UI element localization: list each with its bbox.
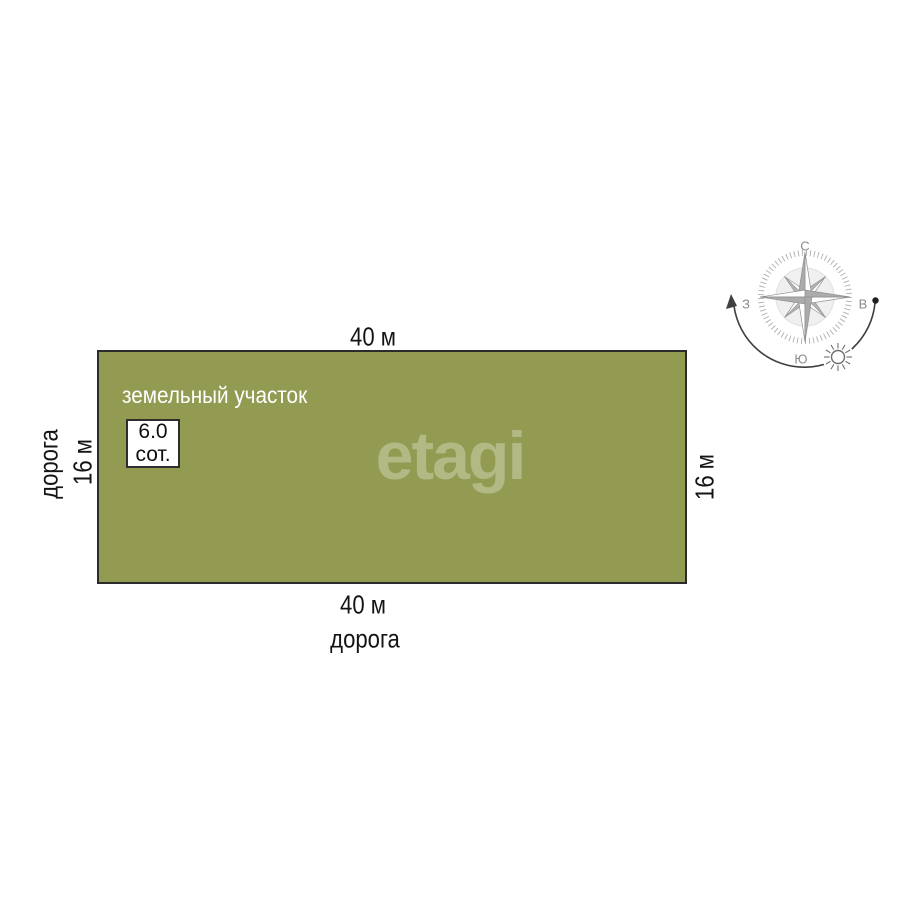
plot-title: земельный участок xyxy=(122,382,307,409)
area-value: 6.0 xyxy=(138,421,167,443)
compass-east-label: В xyxy=(859,297,868,312)
dimension-left: 16 м xyxy=(68,439,99,485)
compass-north-label: С xyxy=(800,239,809,254)
compass-rose-icon: С Ю З В xyxy=(715,230,895,390)
dimension-bottom: 40 м xyxy=(340,590,386,621)
sun-icon xyxy=(822,341,854,373)
road-label-left: дорога xyxy=(34,429,65,499)
land-plot-diagram: земельный участок 6.0 сот. etagi 40 м 40… xyxy=(0,0,900,900)
compass-south-label: Ю xyxy=(794,352,807,367)
road-label-bottom: дорога xyxy=(330,624,400,655)
dimension-right: 16 м xyxy=(690,454,721,500)
compass-west-label: З xyxy=(742,297,750,312)
area-badge: 6.0 сот. xyxy=(126,419,180,468)
watermark-logo: etagi xyxy=(376,417,525,495)
area-unit: сот. xyxy=(135,444,170,466)
dimension-top: 40 м xyxy=(350,322,396,353)
